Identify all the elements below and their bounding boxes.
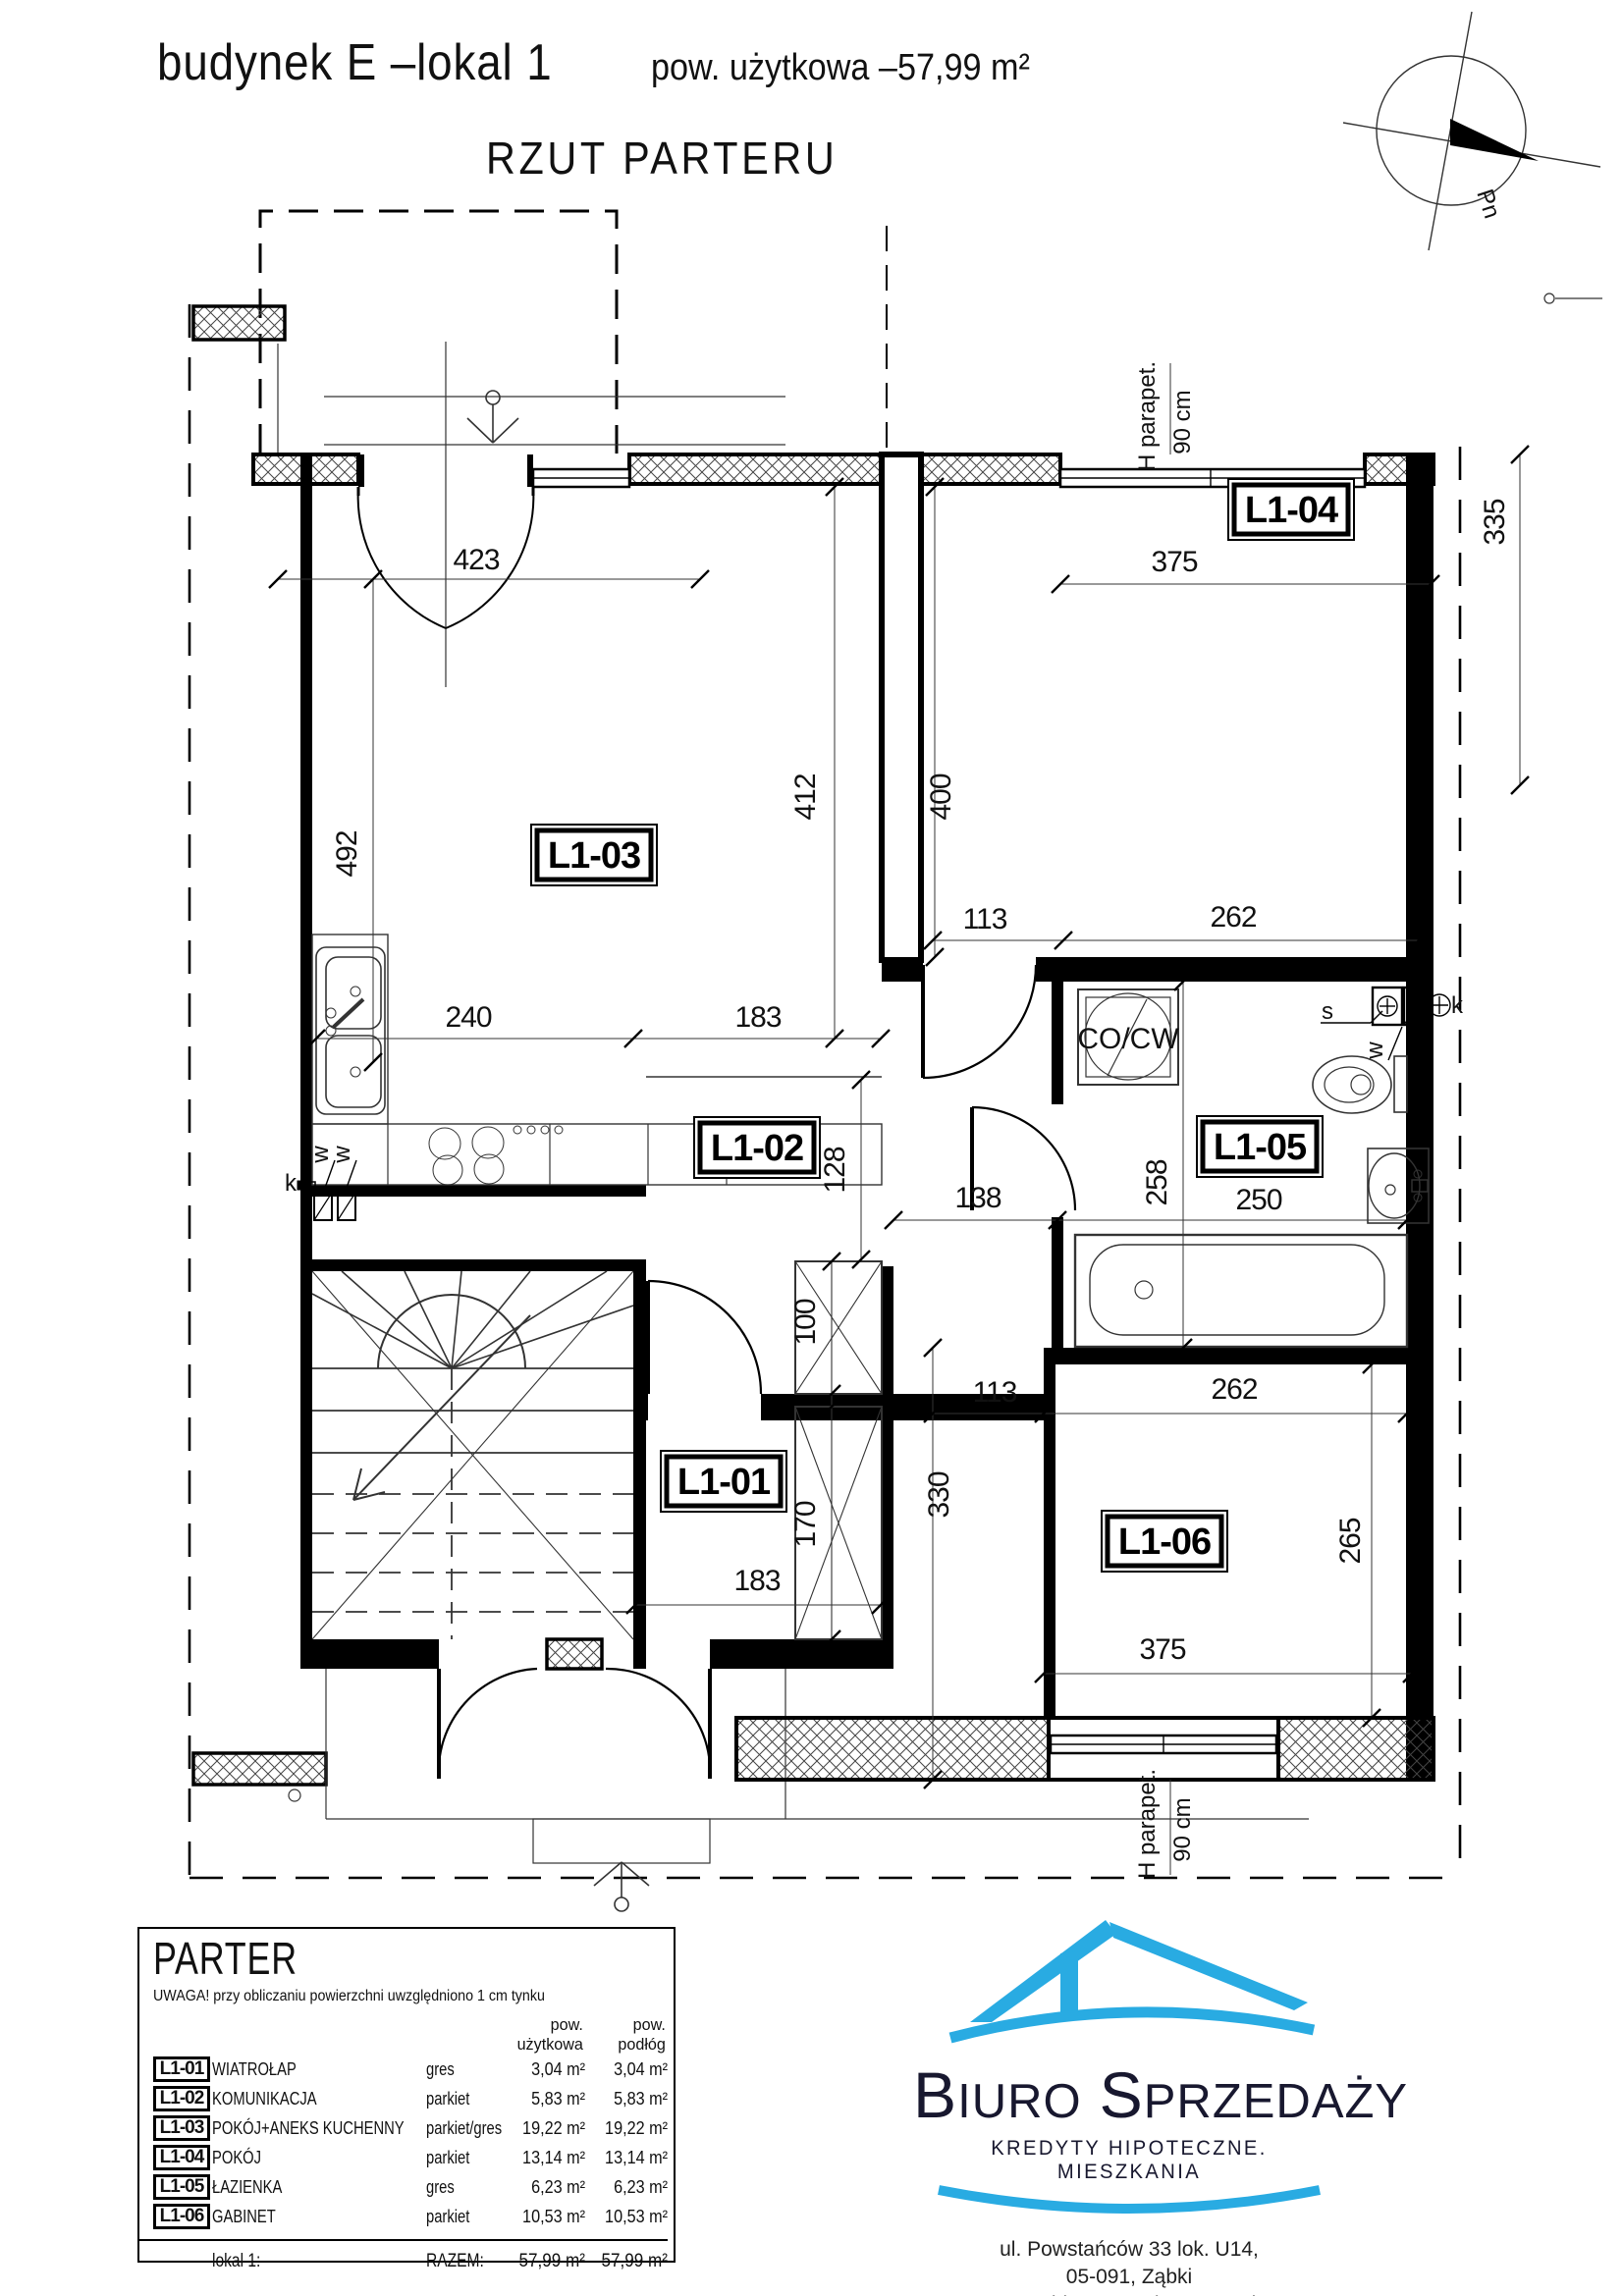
dim-423: 423: [453, 544, 499, 576]
dim-400: 400: [925, 774, 957, 820]
table-total-row: lokal 1: RAZEM: 57,99 m² 57,99 m²: [153, 2247, 664, 2276]
svg-text:L1-05: L1-05: [1214, 1127, 1307, 1168]
dim-128: 128: [819, 1147, 851, 1193]
interior-walls: [312, 454, 1407, 1718]
dim-375-top: 375: [1151, 546, 1197, 578]
label-w-bath: w: [1362, 1041, 1388, 1060]
row-badge: L1-05: [153, 2174, 210, 2200]
stove: [429, 1126, 563, 1185]
table-row: L1-01 WIATROŁAP gres 3,04 m² 3,04 m²: [153, 2055, 664, 2084]
row-badge: L1-02: [153, 2086, 210, 2111]
address-line-2: 05-091, Ząbki: [913, 2264, 1345, 2291]
toilet: [1313, 1056, 1407, 1113]
kitchen-sink: [316, 947, 385, 1114]
bathtub: [1075, 1235, 1407, 1347]
room-label-l106: L1-06: [1102, 1511, 1227, 1572]
logo-tagline: KREDYTY HIPOTECZNE. MIESZKANIA: [922, 2137, 1336, 2184]
neighbour-wall-stub-bottom: [193, 1753, 326, 1785]
room-label-l104: L1-04: [1228, 479, 1354, 540]
window-room-l106: [1051, 1735, 1276, 1753]
svg-text:L1-01: L1-01: [677, 1462, 771, 1503]
dim-183-bottom: 183: [733, 1565, 780, 1597]
roof-drain-top: [467, 391, 518, 443]
compass-north-label: Pn: [1471, 187, 1505, 222]
logo-address-block: ul. Powstańców 33 lok. U14, 05-091, Ząbk…: [913, 2236, 1345, 2296]
dim-258: 258: [1141, 1159, 1173, 1205]
room-label-l101: L1-01: [661, 1451, 786, 1512]
dim-330: 330: [923, 1471, 955, 1518]
label-k-kitchen: k: [285, 1170, 298, 1197]
terrace-dashed-outline: [260, 211, 887, 454]
compass-rose: Pn: [1343, 12, 1600, 250]
dim-262-top: 262: [1210, 901, 1256, 934]
legend-note: UWAGA! przy obliczaniu powierzchni uwzgl…: [153, 1988, 622, 2005]
parapet-label-bottom: H parapet.: [1134, 1769, 1161, 1879]
dim-183-mid: 183: [734, 1001, 781, 1034]
row-badge: L1-04: [153, 2145, 210, 2170]
sales-office-logo: BiuroSprzedaży KREDYTY HIPOTECZNE. MIESZ…: [913, 1912, 1345, 2296]
legend-title: PARTER: [153, 1935, 552, 1982]
table-row: L1-05 ŁAZIENKA gres 6,23 m² 6,23 m²: [153, 2172, 664, 2202]
label-w-kitchen-2: w: [329, 1146, 355, 1164]
roof-drain-bottom: [594, 1862, 649, 1911]
door-l101: [648, 1281, 761, 1394]
dim-240: 240: [445, 1001, 491, 1034]
table-row: L1-02 KOMUNIKACJA parkiet 5,83 m² 5,83 m…: [153, 2084, 664, 2113]
logo-swoosh: [923, 2184, 1335, 2217]
parapet-height-top: 90 cm: [1169, 390, 1196, 454]
room-schedule-table: PARTER UWAGA! przy obliczaniu powierzchn…: [137, 1927, 676, 2263]
col-usable: pow. użytkowa: [505, 2015, 583, 2055]
entrance-door-staircase: [439, 1669, 537, 1779]
dim-412: 412: [789, 774, 822, 820]
dim-100: 100: [789, 1299, 822, 1345]
legend-header-row: pow. użytkowa pow. podłóg: [153, 2015, 664, 2055]
address-line-1: ul. Powstańców 33 lok. U14,: [913, 2236, 1345, 2264]
room-label-l105: L1-05: [1197, 1116, 1323, 1177]
svg-text:L1-06: L1-06: [1118, 1522, 1211, 1563]
room-label-l103: L1-03: [531, 825, 657, 885]
entrance-door-l101: [606, 1669, 710, 1779]
dim-113-bottom: 113: [973, 1376, 1017, 1409]
dim-335: 335: [1479, 499, 1511, 545]
boiler-label: CO/CW: [1077, 1023, 1179, 1055]
dim-492: 492: [331, 830, 363, 877]
windows: [533, 469, 1365, 1753]
svg-text:L1-02: L1-02: [711, 1128, 803, 1169]
table-divider: [139, 2239, 668, 2241]
staircase: [312, 1271, 633, 1639]
dim-262-bottom: 262: [1211, 1373, 1257, 1406]
logo-house-icon: [923, 1912, 1335, 2059]
row-badge: L1-03: [153, 2115, 210, 2141]
svg-text:L1-03: L1-03: [548, 835, 640, 877]
svg-text:L1-04: L1-04: [1245, 490, 1338, 531]
table-row: L1-03 POKÓJ+ANEKS KUCHENNY parkiet/gres …: [153, 2113, 664, 2143]
row-badge: L1-01: [153, 2056, 210, 2082]
room-label-l102: L1-02: [694, 1117, 820, 1178]
table-row: L1-04 POKÓJ parkiet 13,14 m² 13,14 m²: [153, 2143, 664, 2172]
door-l104: [923, 965, 1036, 1078]
logo-company-name: BiuroSprzedaży: [913, 2058, 1345, 2133]
dim-265: 265: [1334, 1518, 1367, 1564]
label-s: s: [1322, 998, 1333, 1025]
website: www.biurosprzedazy.com.pl: [913, 2291, 1345, 2296]
col-floor: pow. podłóg: [587, 2015, 666, 2055]
floor-plan-sheet: budynek E –lokal 1 pow. użytkowa –57,99 …: [0, 0, 1623, 2296]
dim-170: 170: [789, 1501, 822, 1547]
dim-250: 250: [1235, 1184, 1281, 1216]
label-k-bath: k: [1451, 992, 1464, 1019]
row-badge: L1-06: [153, 2204, 210, 2229]
window-top-left: [533, 469, 629, 487]
parapet-label-top: H parapet.: [1134, 361, 1161, 471]
parapet-height-bottom: 90 cm: [1169, 1797, 1196, 1861]
stair-direction-arrow: [353, 1315, 530, 1500]
dim-375-bottom: 375: [1139, 1633, 1185, 1666]
dim-138: 138: [954, 1182, 1001, 1214]
neighbour-wall-stub-top: [193, 306, 285, 340]
dim-113-top: 113: [963, 903, 1007, 935]
table-row: L1-06 GABINET parkiet 10,53 m² 10,53 m²: [153, 2202, 664, 2231]
